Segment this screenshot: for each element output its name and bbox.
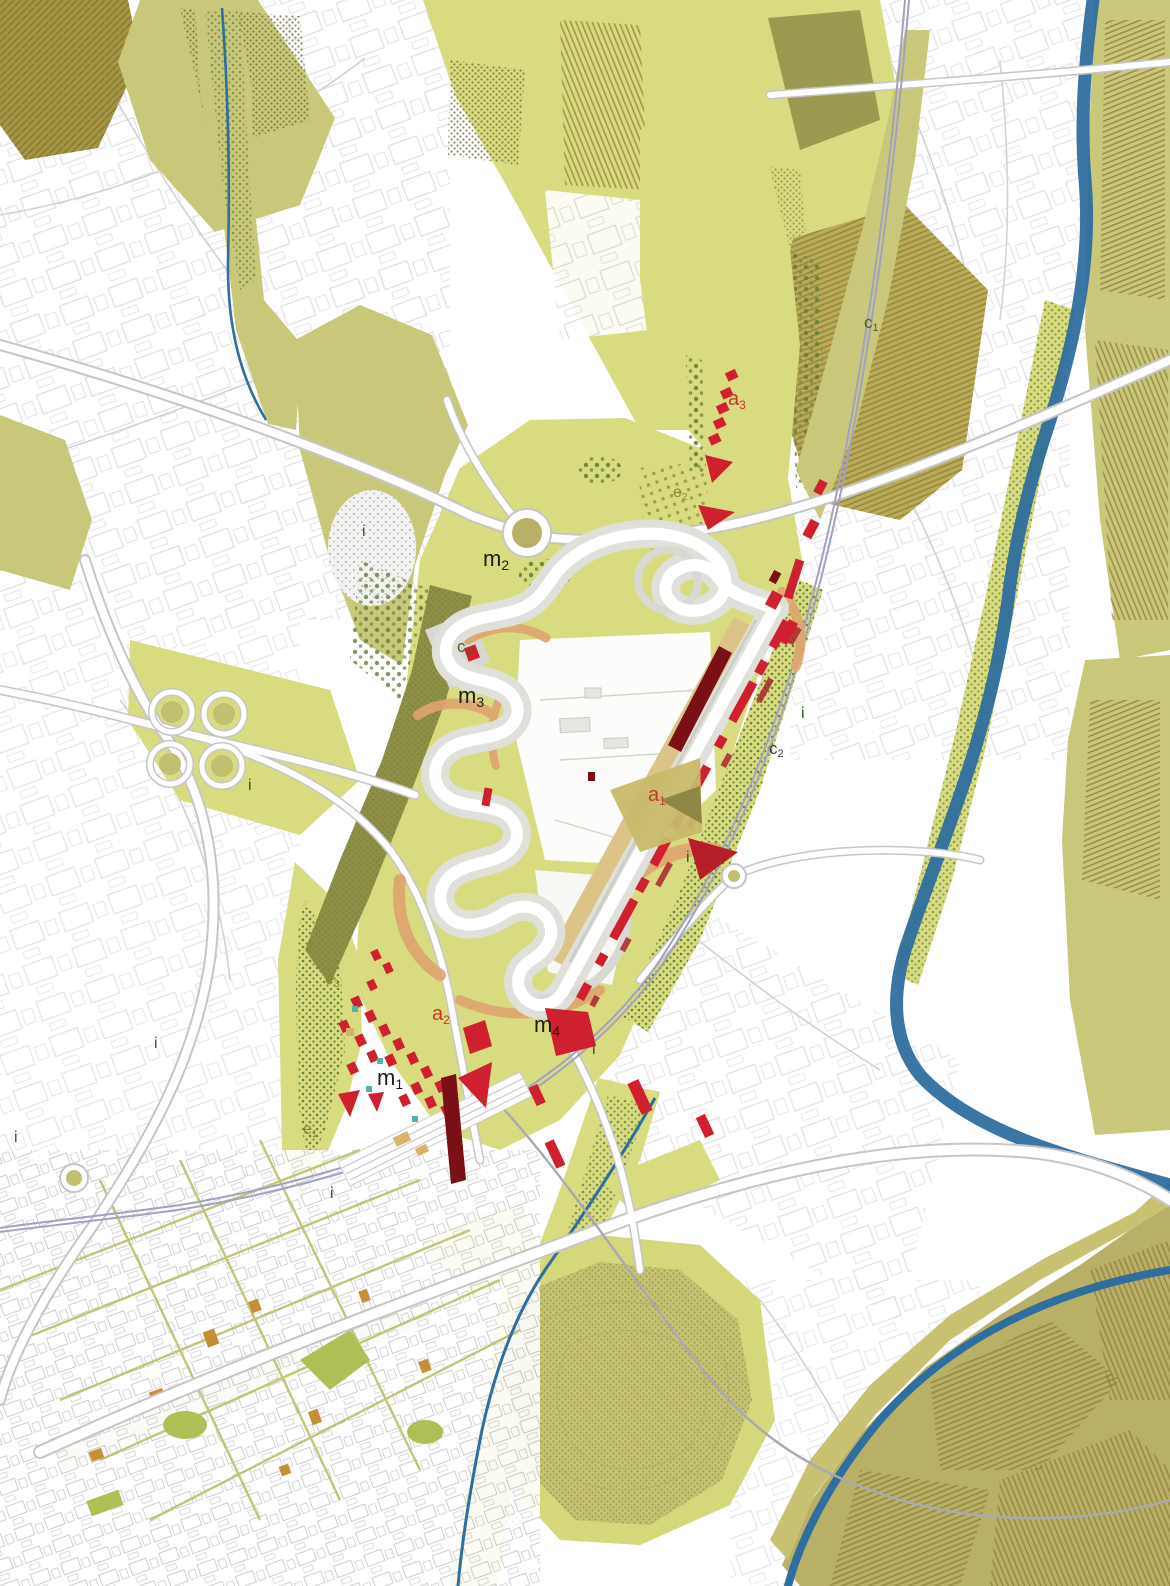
field-topcentre-hatch1 — [560, 20, 648, 190]
field-rightedge-mid-hatch — [1082, 700, 1160, 900]
roundabout-east — [722, 864, 746, 888]
roundabout-south — [60, 1164, 88, 1192]
map-label-i7: i — [801, 705, 805, 722]
town-layer — [0, 1140, 540, 1586]
treecluster-2 — [578, 456, 622, 484]
roundabout-m2 — [503, 509, 551, 557]
map-label-i6: i — [592, 1041, 596, 1058]
maroon-small-infield — [588, 772, 595, 781]
masterplan-map: m2m3m1m4a1a2a3c1c2c3e1e2e3iiiiiiii — [0, 0, 1170, 1586]
map-label-i5: i — [330, 1185, 334, 1202]
town-fabric — [0, 1150, 540, 1586]
map-label-i2: i — [248, 777, 252, 794]
urban-hole-topcentre — [545, 190, 650, 340]
field-topcentre-hatch2 — [448, 60, 525, 165]
map-label-i8: i — [686, 849, 690, 866]
map-label-i4: i — [14, 1129, 18, 1146]
map-label-i3: i — [154, 1035, 158, 1052]
map-label-i1: i — [362, 523, 366, 540]
map-canvas: m2m3m1m4a1a2a3c1c2c3e1e2e3iiiiiiii — [0, 0, 1170, 1586]
